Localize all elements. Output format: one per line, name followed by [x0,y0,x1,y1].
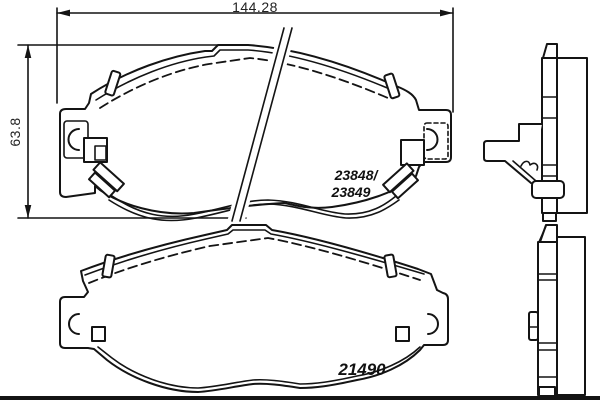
brake-pad-drawing: 144.28 63.8 23848/ 23849 21490 [0,0,600,400]
arrowhead-left-icon [57,10,70,17]
notch-left [92,327,105,341]
notch-right [396,327,409,341]
pad-front-view-bottom [60,225,448,392]
part-number-top-line1: 23848/ [334,167,380,183]
image-bottom-border [0,396,600,400]
arrowhead-right-icon [440,10,453,17]
height-dimension-label: 63.8 [7,117,23,146]
part-number-top-line2: 23849 [331,184,371,200]
technical-drawing-canvas: 144.28 63.8 23848/ 23849 21490 [0,0,600,400]
arrowhead-up-icon [25,45,32,58]
pad-side-view-bottom [529,225,585,396]
pad-side-view-top [484,44,587,221]
width-dimension-label: 144.28 [232,0,278,15]
plate-bottom-tab [539,387,555,396]
plate-bottom-tab [543,213,556,221]
part-number-bottom: 21490 [337,360,386,379]
friction-block [557,237,585,395]
plate-top-tab [543,44,557,58]
sensor-clip-right [401,140,424,165]
arrowhead-down-icon [25,205,32,218]
side-lug [529,312,538,340]
backing-plate [538,242,557,395]
